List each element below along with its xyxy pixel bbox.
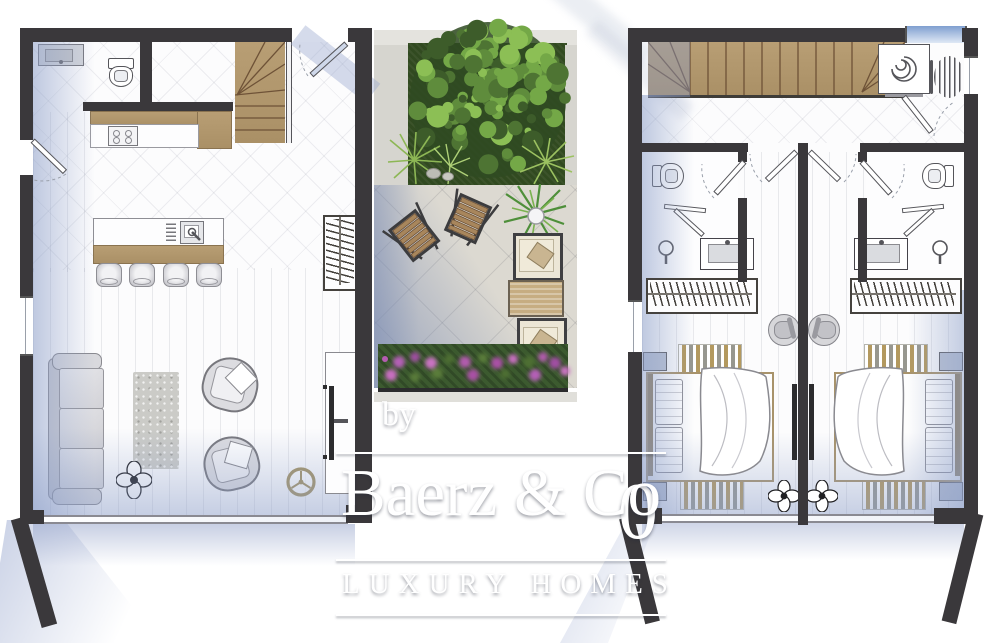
bathroom-wall: [738, 198, 747, 282]
kitchen-island-base: [93, 245, 224, 264]
floorplan-rendering: 0 by Baerz & Co LUXURY HOMES: [0, 0, 1000, 643]
bathroom-door: [858, 158, 906, 208]
bar-stool: [129, 263, 155, 287]
wall-stub: [934, 508, 978, 524]
wardrobe-rail: [648, 293, 752, 295]
watermark-brand: Baerz & Co: [336, 458, 666, 528]
duvet: [830, 366, 930, 482]
burner: [113, 137, 120, 144]
watermark-rule: [336, 559, 666, 561]
watermark-rule: [336, 614, 666, 616]
tv: [329, 386, 334, 460]
ornamental-grass: [516, 138, 576, 186]
rocks: [426, 168, 441, 179]
suite-door: [748, 148, 800, 196]
center-wall: [798, 143, 808, 525]
bar-stool: [96, 263, 122, 287]
wall-tv: [809, 384, 814, 460]
landing-door: [900, 94, 956, 146]
shower-head: [930, 240, 950, 266]
stove: [108, 126, 138, 146]
glass-wall-shadow: [33, 428, 355, 518]
outer-wall-top: [628, 28, 905, 42]
watermark-prefix: by: [382, 398, 416, 432]
stair-rail: [286, 42, 292, 143]
kitchen-counter-front: [90, 124, 199, 148]
wardrobe-rail: [852, 293, 956, 295]
side-door: [30, 138, 78, 184]
rocks: [442, 172, 454, 181]
desk-chair: [768, 314, 800, 346]
ornamental-grass: [386, 132, 472, 188]
stair-shadow: [648, 42, 690, 97]
sliding-glass-wall: [40, 515, 348, 524]
bar-stool: [196, 263, 222, 287]
lounge-chair: [513, 233, 563, 281]
toilet-seat: [928, 169, 941, 183]
cabinet-knob: [323, 455, 327, 459]
island-sink: [180, 221, 204, 244]
window: [20, 296, 33, 356]
bathroom-door: [700, 158, 748, 208]
duvet: [674, 366, 774, 482]
kitchen-wall: [83, 102, 233, 111]
wall-tv: [792, 384, 797, 460]
burner: [125, 137, 132, 144]
window: [628, 300, 642, 356]
island-utensils: [166, 223, 176, 241]
potted-plant: [806, 480, 838, 512]
desk-chair: [808, 314, 840, 346]
wall-stub: [20, 510, 44, 524]
flowers: [382, 356, 388, 362]
bar-stool: [163, 263, 189, 287]
wardrobe: [646, 278, 758, 314]
cabinet-knob: [323, 385, 327, 389]
entry-glass-door: [296, 38, 356, 86]
suite-door: [806, 148, 858, 196]
outer-wall-top: [962, 28, 978, 42]
burner: [125, 130, 132, 137]
watermark-tagline: LUXURY HOMES: [342, 570, 672, 599]
bathroom-wall: [140, 42, 152, 103]
terrace-shadow: [642, 522, 964, 560]
flower-bed: [378, 344, 568, 390]
outer-wall-left: [20, 175, 33, 296]
outer-wall-left: [20, 28, 33, 140]
kitchen-counter-corner: [197, 111, 232, 149]
washing-machine: [878, 44, 930, 94]
faucet: [879, 240, 884, 245]
outer-wall-left: [20, 352, 33, 520]
wardrobe: [850, 278, 962, 314]
watermark-rule: [336, 452, 666, 454]
watermark: by Baerz & Co LUXURY HOMES: [336, 398, 666, 626]
bathroom-wall: [858, 198, 867, 282]
winder-staircase: [235, 42, 285, 143]
outer-wall-left: [628, 42, 642, 300]
outer-wall-top: [20, 28, 292, 42]
potted-plant: [768, 480, 800, 512]
wicker-table: [508, 280, 564, 317]
hallway-wall: [642, 143, 748, 152]
outer-wall-right: [964, 94, 978, 522]
toilet: [106, 58, 134, 86]
window: [964, 56, 978, 98]
rack-bar: [930, 60, 933, 94]
wardrobe-rail: [339, 217, 341, 285]
faucet: [725, 240, 730, 245]
kitchen-island: [93, 218, 224, 247]
burner: [113, 130, 120, 137]
terrace-shadow: [33, 524, 355, 566]
toilet: [922, 162, 954, 188]
outer-wall-right: [964, 42, 978, 56]
window: [905, 26, 967, 43]
basin: [862, 244, 900, 263]
drying-rack: [934, 56, 964, 98]
toilet-seat: [114, 70, 128, 82]
